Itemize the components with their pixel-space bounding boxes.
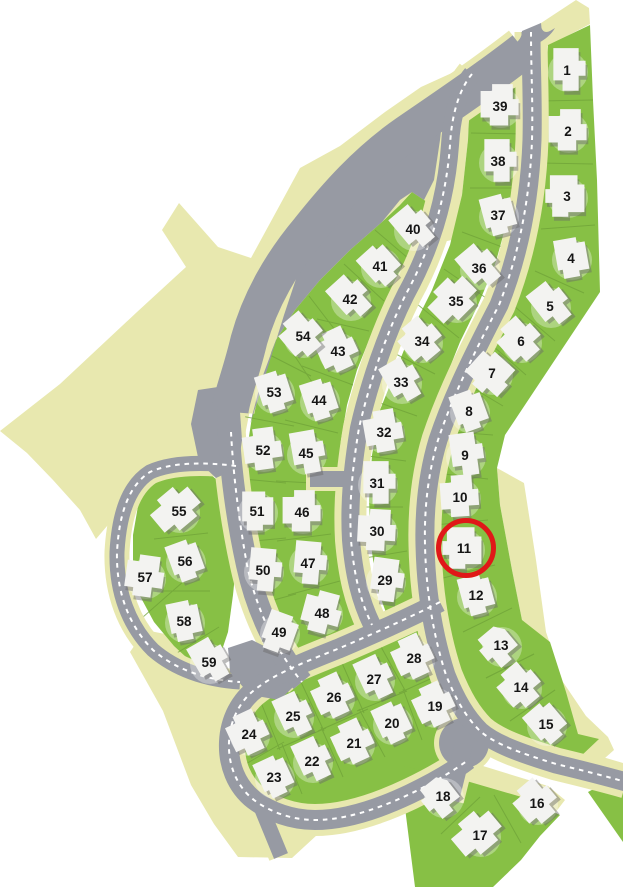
svg-text:2: 2	[564, 124, 572, 139]
svg-text:13: 13	[493, 638, 509, 653]
svg-text:54: 54	[295, 329, 311, 344]
svg-text:8: 8	[465, 404, 473, 419]
svg-text:14: 14	[513, 680, 529, 695]
svg-text:49: 49	[271, 625, 286, 640]
svg-text:31: 31	[369, 476, 385, 491]
svg-text:56: 56	[177, 554, 193, 569]
svg-text:7: 7	[488, 366, 496, 381]
svg-text:43: 43	[330, 344, 346, 359]
svg-text:6: 6	[517, 334, 525, 349]
svg-text:26: 26	[326, 690, 342, 705]
svg-text:48: 48	[314, 606, 330, 621]
svg-text:53: 53	[266, 385, 282, 400]
svg-text:20: 20	[384, 716, 399, 731]
svg-text:57: 57	[137, 570, 152, 585]
svg-text:10: 10	[452, 490, 467, 505]
svg-text:4: 4	[567, 251, 575, 266]
svg-text:28: 28	[406, 651, 422, 666]
svg-text:39: 39	[492, 99, 507, 114]
svg-text:36: 36	[471, 261, 487, 276]
svg-text:29: 29	[377, 573, 392, 588]
svg-text:38: 38	[490, 154, 506, 169]
svg-text:21: 21	[346, 736, 362, 751]
svg-text:52: 52	[255, 443, 270, 458]
svg-text:19: 19	[427, 699, 442, 714]
svg-text:32: 32	[376, 425, 391, 440]
svg-text:15: 15	[538, 717, 554, 732]
svg-text:12: 12	[468, 588, 483, 603]
svg-text:3: 3	[563, 189, 571, 204]
svg-text:25: 25	[285, 709, 301, 724]
svg-text:59: 59	[201, 655, 216, 670]
svg-text:42: 42	[342, 292, 357, 307]
svg-text:33: 33	[393, 375, 409, 390]
svg-text:37: 37	[490, 208, 505, 223]
svg-text:46: 46	[294, 505, 310, 520]
svg-text:5: 5	[546, 299, 554, 314]
svg-text:30: 30	[369, 524, 384, 539]
svg-text:18: 18	[435, 789, 451, 804]
svg-text:22: 22	[304, 754, 319, 769]
svg-text:9: 9	[461, 448, 469, 463]
svg-text:17: 17	[472, 828, 487, 843]
svg-text:55: 55	[171, 504, 187, 519]
svg-text:11: 11	[457, 541, 472, 556]
svg-text:44: 44	[311, 393, 327, 408]
svg-text:45: 45	[298, 446, 314, 461]
svg-text:51: 51	[249, 504, 265, 519]
svg-text:27: 27	[366, 672, 381, 687]
svg-text:58: 58	[176, 614, 192, 629]
svg-text:35: 35	[448, 294, 464, 309]
svg-text:24: 24	[241, 727, 257, 742]
svg-text:34: 34	[414, 334, 430, 349]
svg-text:40: 40	[405, 222, 420, 237]
svg-text:41: 41	[372, 259, 388, 274]
svg-text:1: 1	[563, 63, 571, 78]
svg-text:16: 16	[529, 796, 545, 811]
svg-text:50: 50	[255, 563, 270, 578]
svg-text:47: 47	[300, 556, 315, 571]
svg-text:23: 23	[266, 770, 282, 785]
